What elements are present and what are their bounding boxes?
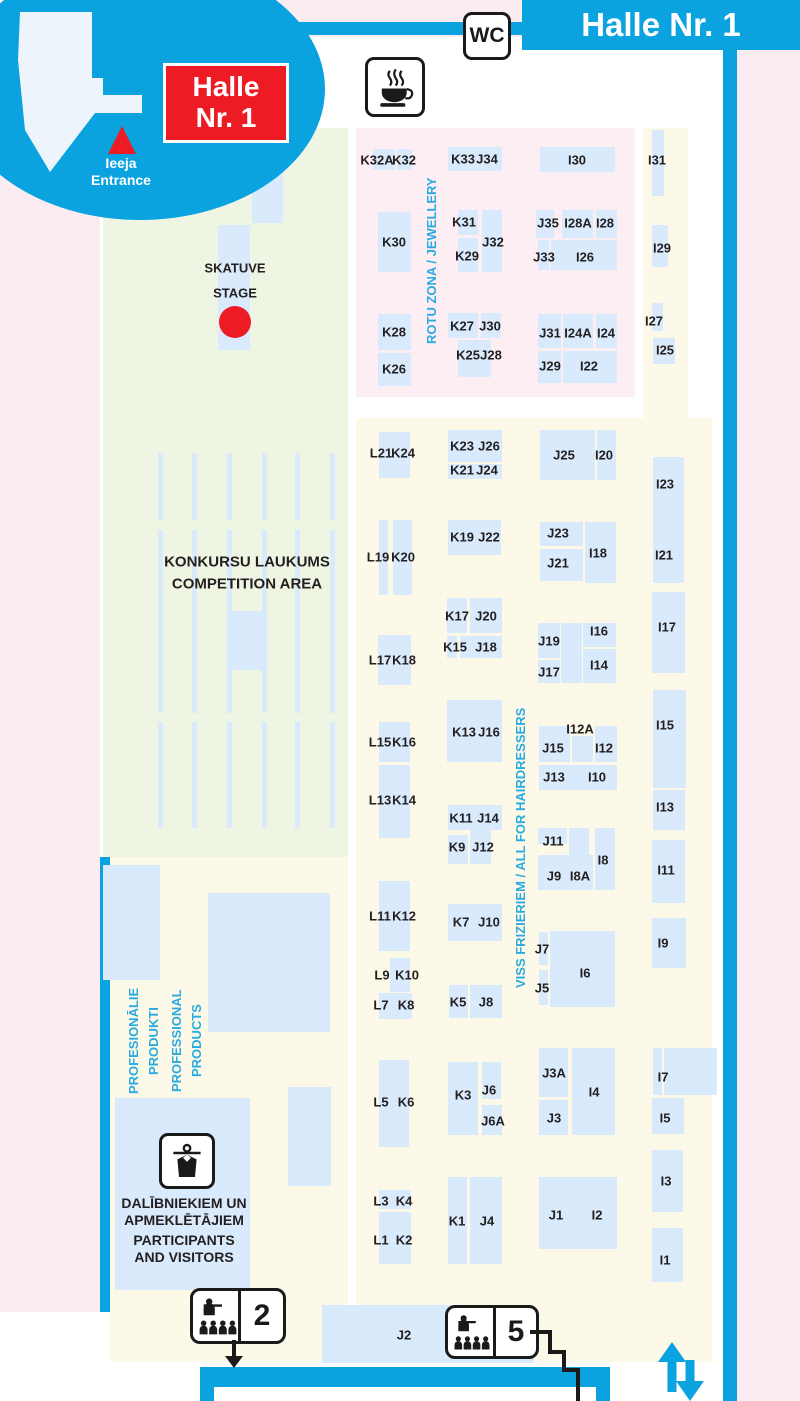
professional-label-en2: PRODUCTS bbox=[189, 984, 204, 1098]
professional-label-en1: PROFESSIONAL bbox=[169, 984, 184, 1098]
booth-label-i28a: I28A bbox=[564, 217, 591, 230]
competition-label-lv: KONKURSU LAUKUMS bbox=[164, 555, 330, 570]
booth-block bbox=[569, 828, 589, 855]
booth-label-i25: I25 bbox=[656, 344, 674, 357]
booth-label-j23: J23 bbox=[547, 527, 569, 540]
cloakroom-icon-box bbox=[159, 1133, 215, 1189]
hall5-audience-box bbox=[445, 1305, 499, 1359]
booth-label-j20: J20 bbox=[475, 610, 497, 623]
booth-label-j15: J15 bbox=[542, 742, 564, 755]
booth-label-l17: L17 bbox=[369, 654, 391, 667]
booth-label-k32a: K32A bbox=[360, 154, 393, 167]
booth-label-j25: J25 bbox=[553, 449, 575, 462]
booth-label-k31: K31 bbox=[452, 216, 476, 229]
booth-label-k6: K6 bbox=[398, 1096, 415, 1109]
booth-label-l5: L5 bbox=[373, 1096, 388, 1109]
booth-label-i3: I3 bbox=[661, 1175, 672, 1188]
stage-label-en: STAGE bbox=[213, 287, 257, 300]
competition-grid-line bbox=[330, 722, 335, 828]
auditorium-icon bbox=[453, 1313, 491, 1351]
competition-grid-line bbox=[262, 453, 267, 520]
hall2-number-box: 2 bbox=[238, 1288, 286, 1344]
bottom-wall-stub-right bbox=[596, 1387, 610, 1401]
booth-label-k5: K5 bbox=[450, 996, 467, 1009]
booth-label-i16: I16 bbox=[590, 625, 608, 638]
right-wall-bar bbox=[723, 50, 737, 1401]
booth-label-k13: K13 bbox=[452, 726, 476, 739]
booth-label-l19: L19 bbox=[367, 551, 389, 564]
booth-label-i15: I15 bbox=[656, 719, 674, 732]
booth-label-j34: J34 bbox=[476, 153, 498, 166]
competition-grid-line bbox=[330, 530, 335, 713]
booth-label-k3: K3 bbox=[455, 1089, 472, 1102]
booth-label-j6: J6 bbox=[482, 1084, 496, 1097]
booth-label-j2: J2 bbox=[397, 1329, 411, 1342]
booth-label-i4: I4 bbox=[589, 1086, 600, 1099]
booth-label-k2: K2 bbox=[396, 1234, 413, 1247]
hall-number-badge: Halle Nr. 1 bbox=[163, 63, 289, 143]
booth-label-k12: K12 bbox=[392, 910, 416, 923]
stairs-step-line bbox=[530, 1328, 590, 1401]
booth-block bbox=[208, 893, 330, 1032]
booth-label-i30: I30 bbox=[568, 154, 586, 167]
booth-label-k29: K29 bbox=[455, 250, 479, 263]
cafe-sign bbox=[365, 57, 425, 117]
booth-label-j13: J13 bbox=[543, 771, 565, 784]
competition-label-en: COMPETITION AREA bbox=[172, 577, 322, 592]
booth-block bbox=[572, 736, 593, 762]
booth-label-i28: I28 bbox=[596, 217, 614, 230]
hall2-down-arrow-icon bbox=[220, 1340, 248, 1368]
booth-label-k7: K7 bbox=[453, 916, 470, 929]
booth-label-k8: K8 bbox=[398, 999, 415, 1012]
cloakroom-label-lv2: APMEKLĒTĀJIEM bbox=[124, 1213, 244, 1227]
booth-label-i26: I26 bbox=[576, 251, 594, 264]
bottom-wall-stub-left bbox=[200, 1387, 214, 1401]
booth-label-j18: J18 bbox=[475, 641, 497, 654]
booth-label-k25: K25 bbox=[456, 349, 480, 362]
booth-label-i24: I24 bbox=[597, 327, 615, 340]
booth-block bbox=[103, 865, 160, 980]
booth-label-j22: J22 bbox=[478, 531, 500, 544]
booth-label-i27: I27 bbox=[645, 315, 663, 328]
booth-label-j26: J26 bbox=[478, 440, 500, 453]
booth-label-j30: J30 bbox=[479, 320, 501, 333]
booth-label-j17: J17 bbox=[538, 666, 560, 679]
booth-label-l21: L21 bbox=[370, 447, 392, 460]
booth-label-i22: I22 bbox=[580, 360, 598, 373]
coffee-icon bbox=[373, 65, 417, 109]
booth-label-k10: K10 bbox=[395, 969, 419, 982]
booth-label-i17: I17 bbox=[658, 621, 676, 634]
booth-label-i12a: I12A bbox=[566, 723, 593, 736]
booth-label-k21: K21 bbox=[450, 464, 474, 477]
booth-label-i8: I8 bbox=[598, 854, 609, 867]
booth-label-k32: K32 bbox=[392, 154, 416, 167]
booth-label-k4: K4 bbox=[396, 1195, 413, 1208]
competition-grid-line bbox=[330, 453, 335, 520]
booth-label-j16: J16 bbox=[478, 726, 500, 739]
booth-label-k18: K18 bbox=[392, 654, 416, 667]
cloakroom-label-en1: PARTICIPANTS bbox=[133, 1233, 234, 1247]
professional-label-lv2: PRODUKTI bbox=[146, 984, 161, 1098]
booth-label-i31: I31 bbox=[648, 154, 666, 167]
booth-label-i13: I13 bbox=[656, 801, 674, 814]
booth-label-j10: J10 bbox=[478, 916, 500, 929]
stage-label-lv: SKATUVE bbox=[204, 262, 265, 275]
booth-label-j3a: J3A bbox=[542, 1067, 566, 1080]
booth-label-i24a: I24A bbox=[564, 327, 591, 340]
booth-label-j12: J12 bbox=[472, 841, 494, 854]
booth-label-i29: I29 bbox=[653, 242, 671, 255]
booth-label-j35: J35 bbox=[537, 217, 559, 230]
booth-label-l13: L13 bbox=[369, 794, 391, 807]
booth-label-k33: K33 bbox=[451, 153, 475, 166]
booth-label-k30: K30 bbox=[382, 236, 406, 249]
booth-label-l1: L1 bbox=[373, 1234, 388, 1247]
cloakroom-label-en2: AND VISITORS bbox=[134, 1250, 233, 1264]
booth-label-i23: I23 bbox=[656, 478, 674, 491]
booth-label-k20: K20 bbox=[391, 551, 415, 564]
booth-label-k11: K11 bbox=[449, 812, 472, 825]
hall2-number: 2 bbox=[254, 1299, 271, 1333]
booth-label-i12: I12 bbox=[595, 742, 613, 755]
competition-grid-line bbox=[158, 453, 163, 520]
booth-label-i1: I1 bbox=[660, 1254, 671, 1267]
booth-label-j1: J1 bbox=[549, 1209, 563, 1222]
booth-label-l3: L3 bbox=[373, 1195, 388, 1208]
page-title: Halle Nr. 1 bbox=[581, 6, 741, 44]
booth-label-j7: J7 bbox=[535, 943, 549, 956]
coat-icon bbox=[167, 1141, 207, 1181]
booth-label-j31: J31 bbox=[539, 327, 561, 340]
booth-block bbox=[288, 1087, 331, 1186]
auditorium-icon bbox=[198, 1296, 238, 1336]
booth-label-j19: J19 bbox=[538, 635, 560, 648]
competition-grid-line bbox=[158, 530, 163, 713]
booth-label-i18: I18 bbox=[589, 547, 607, 560]
booth-label-i5: I5 bbox=[660, 1112, 671, 1125]
professional-label-lv1: PROFESIONĀLIE bbox=[126, 984, 141, 1098]
up-down-arrows-icon bbox=[652, 1340, 712, 1401]
hall5-number: 5 bbox=[508, 1315, 525, 1349]
booth-label-i7: I7 bbox=[658, 1071, 669, 1084]
booth-label-k16: K16 bbox=[392, 736, 416, 749]
hairdressers-zone-label: VISS FRIZIERIEM / ALL FOR HAIRDRESSERS bbox=[513, 708, 528, 988]
booth-label-l7: L7 bbox=[373, 999, 388, 1012]
cloakroom-label-lv1: DALĪBNIEKIEM UN bbox=[121, 1196, 246, 1210]
booth-label-j8: J8 bbox=[479, 996, 493, 1009]
competition-grid-line bbox=[192, 722, 197, 828]
booth-label-k23: K23 bbox=[450, 440, 474, 453]
booth-block bbox=[653, 690, 686, 788]
entrance-label-en: Entrance bbox=[91, 173, 151, 187]
floor-plan-halle-1: Halle Nr. 1 K32AK32K33J34I30I31K30K31K29… bbox=[0, 0, 800, 1401]
booth-label-i6: I6 bbox=[580, 967, 591, 980]
competition-grid-line bbox=[295, 453, 300, 520]
booth-label-j21: J21 bbox=[547, 557, 569, 570]
booth-label-i21: I21 bbox=[655, 549, 673, 562]
booth-label-j33: J33 bbox=[533, 251, 555, 264]
booth-block bbox=[561, 623, 582, 683]
competition-grid-line bbox=[158, 722, 163, 828]
booth-label-j29: J29 bbox=[539, 360, 561, 373]
booth-label-l15: L15 bbox=[369, 736, 391, 749]
booth-label-k17: K17 bbox=[445, 610, 469, 623]
booth-label-j3: J3 bbox=[547, 1112, 561, 1125]
entrance-label-lv: Ieeja bbox=[105, 156, 136, 170]
hall-number-line1: Halle bbox=[193, 72, 260, 103]
booth-label-i11: I11 bbox=[657, 864, 674, 877]
booth-label-k27: K27 bbox=[450, 320, 474, 333]
booth-label-l11: L11 bbox=[369, 910, 391, 923]
booth-label-j11: J11 bbox=[543, 835, 564, 848]
booth-label-j5: J5 bbox=[535, 982, 549, 995]
booth-label-i9: I9 bbox=[658, 937, 669, 950]
booth-label-j32: J32 bbox=[482, 236, 504, 249]
booth-label-j9: J9 bbox=[547, 870, 561, 883]
booth-label-j24: J24 bbox=[476, 464, 498, 477]
booth-label-i2: I2 bbox=[592, 1209, 603, 1222]
booth-label-k14: K14 bbox=[392, 794, 416, 807]
competition-grid-line bbox=[192, 453, 197, 520]
booth-label-k9: K9 bbox=[449, 841, 466, 854]
stage-marker-dot bbox=[219, 306, 251, 338]
jewellery-zone-label: ROTU ZONA / JEWELLERY bbox=[424, 192, 439, 344]
booth-label-j14: J14 bbox=[477, 812, 499, 825]
booth-label-k26: K26 bbox=[382, 363, 406, 376]
title-band: Halle Nr. 1 bbox=[522, 0, 800, 50]
booth-label-j28: J28 bbox=[480, 349, 502, 362]
competition-grid-line bbox=[227, 453, 232, 520]
booth-block bbox=[664, 1048, 717, 1095]
booth-label-i8a: I8A bbox=[570, 870, 590, 883]
booth-label-k1: K1 bbox=[449, 1215, 466, 1228]
competition-grid-line bbox=[295, 722, 300, 828]
zone-right-strip bbox=[643, 128, 688, 418]
booth-block bbox=[230, 611, 262, 670]
booth-label-i10: I10 bbox=[588, 771, 606, 784]
booth-label-l9: L9 bbox=[374, 969, 389, 982]
hall-number-line2: Nr. 1 bbox=[196, 103, 257, 134]
booth-label-i14: I14 bbox=[590, 659, 608, 672]
booth-label-k28: K28 bbox=[382, 326, 406, 339]
booth-label-j6a: J6A bbox=[481, 1115, 505, 1128]
competition-grid-line bbox=[227, 722, 232, 828]
booth-label-j4: J4 bbox=[480, 1215, 494, 1228]
booth-label-k24: K24 bbox=[391, 447, 415, 460]
booth-label-i20: I20 bbox=[595, 449, 613, 462]
wc-sign: WC bbox=[463, 12, 511, 60]
entrance-triangle-icon bbox=[100, 124, 144, 156]
wc-label: WC bbox=[470, 24, 505, 48]
booth-label-k15: K15 bbox=[443, 641, 467, 654]
competition-grid-line bbox=[262, 722, 267, 828]
booth-label-k19: K19 bbox=[450, 531, 474, 544]
